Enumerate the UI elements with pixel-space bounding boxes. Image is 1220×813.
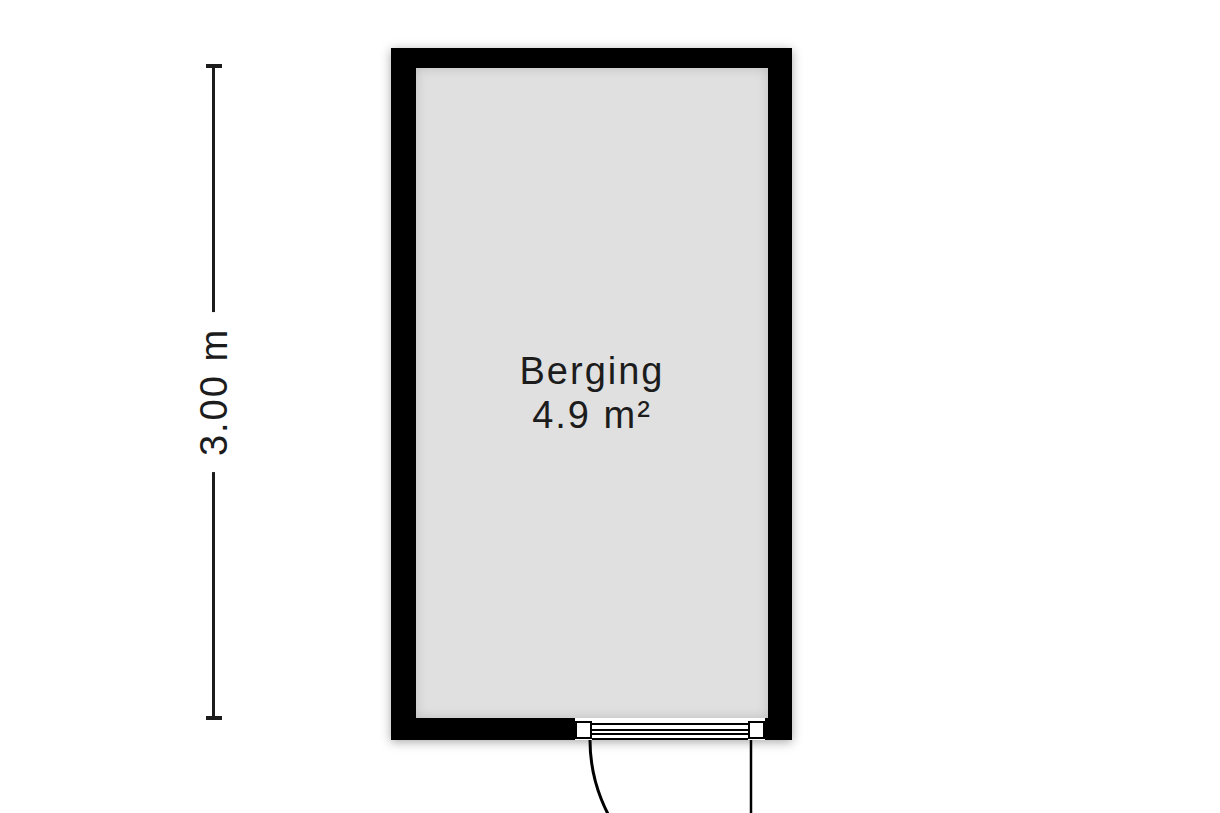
- room-name-label: Berging: [520, 349, 665, 393]
- threshold-line: [592, 733, 748, 735]
- floor-plan: 3.00 m Berging 4.9 m²: [0, 0, 1220, 813]
- dimension-cap-top: [206, 64, 222, 68]
- room-area-label: 4.9 m²: [532, 393, 652, 437]
- threshold-line: [592, 729, 748, 731]
- door-jamb-right: [748, 721, 765, 739]
- dimension-label: 3.00 m: [191, 312, 238, 472]
- dimension-cap-bottom: [206, 716, 222, 720]
- door-swing-arc: [590, 740, 751, 813]
- door-threshold: [592, 723, 748, 740]
- room-label-group: Berging 4.9 m²: [416, 68, 768, 718]
- door-jamb-left: [575, 721, 592, 739]
